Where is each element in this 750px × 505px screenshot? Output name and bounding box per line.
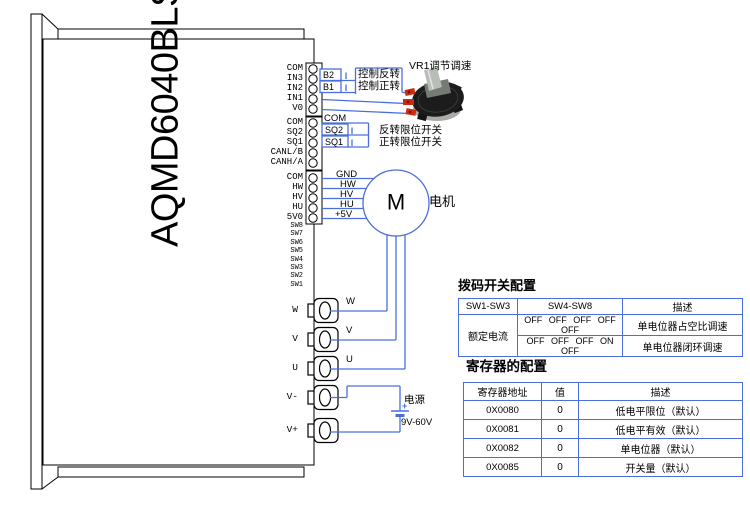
sw-label: SW1 [290, 282, 303, 289]
reg-header: 寄存器地址 [464, 383, 542, 401]
phase-wire-label: U [346, 355, 353, 365]
battery-plus-sign: + [402, 402, 407, 411]
terminal-label: V+ [287, 425, 298, 435]
sq2-label: SQ2 [325, 126, 343, 135]
sw-label: SW8 [290, 223, 303, 230]
wiring-diagram: AQMD6040BLS-Ex COM IN3 IN2 IN1 V0 COM SQ… [0, 0, 750, 505]
sw-label: SW2 [290, 273, 303, 280]
sw-label: SW6 [290, 240, 303, 247]
b1-label: B1 [323, 83, 334, 92]
top-chamfer [42, 14, 58, 29]
register-table-title: 寄存器的配置 [466, 360, 547, 374]
reg-desc: 低电平有效（默认） [579, 420, 743, 439]
terminal-label: V [292, 334, 298, 344]
phase-wire-label: W [346, 297, 355, 307]
reg-header: 值 [542, 383, 579, 401]
reg-val: 0 [542, 401, 579, 420]
phase-wire-label: V [346, 326, 352, 336]
dip-desc: 单电位器闭环调速 [623, 336, 743, 357]
sw-label: SW3 [290, 265, 303, 272]
motor-label: 电机 [429, 195, 455, 209]
reverse-limit-label: 反转限位开关 [379, 125, 442, 136]
dip-row-label: 额定电流 [459, 315, 518, 357]
pin-holes [309, 65, 317, 222]
register-table: 寄存器地址 值 描述 0X0080 0 低电平限位（默认） 0X0081 0 低… [463, 382, 743, 477]
reg-addr: 0X0082 [464, 439, 542, 458]
hall-wire-label: GND [336, 170, 357, 180]
dip-header: SW1-SW3 [459, 299, 518, 315]
dip-sw-values: OFF OFF OFF OFF OFF [518, 315, 623, 336]
motor-symbol: M [387, 191, 405, 214]
dip-desc: 单电位器占空比调速 [623, 315, 743, 336]
reg-desc: 低电平限位（默认） [579, 401, 743, 420]
forward-control-label: 控制正转 [358, 81, 400, 92]
terminal-label: W [292, 305, 298, 315]
battery-symbol [391, 411, 409, 416]
hall-wire-label: +5V [335, 210, 352, 220]
reg-val: 0 [542, 458, 579, 477]
bottom-chamfer [42, 477, 58, 489]
reg-desc: 单电位器（默认） [579, 439, 743, 458]
sw-label: SW7 [290, 231, 303, 238]
hall-wire-label: HW [340, 180, 356, 190]
reg-addr: 0X0081 [464, 420, 542, 439]
pin-label: V0 [292, 104, 303, 113]
reg-addr: 0X0080 [464, 401, 542, 420]
sq1-label: SQ1 [325, 138, 343, 147]
vr1-label: VR1调节调速 [409, 61, 471, 72]
potentiometer [403, 68, 466, 121]
com-wire-label: COM [324, 114, 346, 124]
dip-table-title: 拨码开关配置 [458, 279, 536, 293]
pin-label: CANH/A [271, 158, 303, 167]
reg-val: 0 [542, 420, 579, 439]
reg-desc: 开关量（默认） [579, 458, 743, 477]
reg-header: 描述 [579, 383, 743, 401]
sw-label: SW4 [290, 257, 303, 264]
b2-label: B2 [323, 71, 334, 80]
voltage-range-label: 9V-60V [401, 418, 432, 428]
forward-limit-label: 正转限位开关 [379, 137, 442, 148]
dip-sw-values: OFF OFF OFF ON OFF [518, 336, 623, 357]
terminal-label: U [292, 363, 298, 373]
reg-addr: 0X0085 [464, 458, 542, 477]
dip-header: SW4-SW8 [518, 299, 623, 315]
dip-switch-table: SW1-SW3 SW4-SW8 描述 额定电流 OFF OFF OFF OFF … [458, 298, 743, 357]
hall-wire-label: HV [340, 190, 353, 200]
terminal-label: V- [287, 392, 298, 402]
hall-wire-label: HU [340, 200, 354, 210]
reverse-control-label: 控制反转 [358, 69, 400, 80]
bottom-lip [58, 467, 304, 477]
heatsink-plate [31, 14, 42, 489]
dip-header: 描述 [623, 299, 743, 315]
sw-label: SW5 [290, 248, 303, 255]
reg-val: 0 [542, 439, 579, 458]
